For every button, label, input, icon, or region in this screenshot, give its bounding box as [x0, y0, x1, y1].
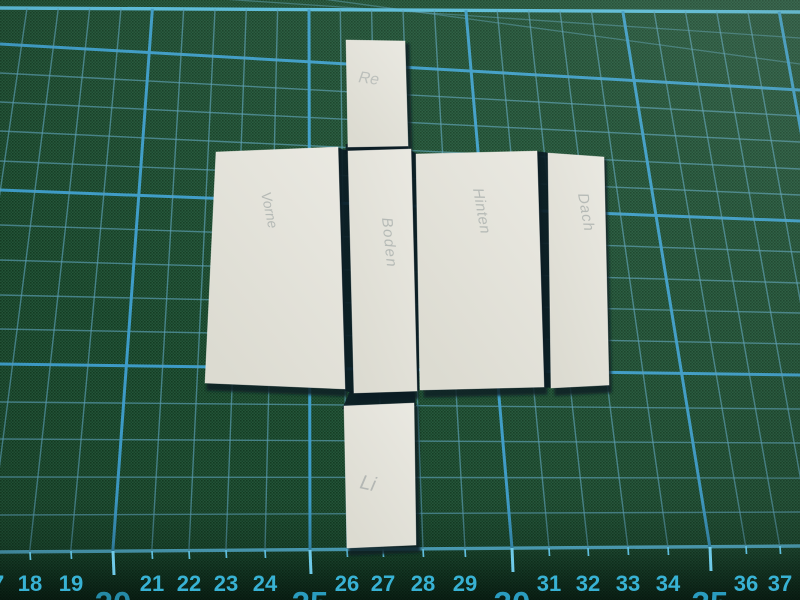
svg-text:29: 29 [453, 571, 477, 596]
svg-text:Re: Re [357, 69, 380, 89]
svg-text:32: 32 [576, 571, 600, 596]
svg-text:36: 36 [734, 571, 758, 596]
svg-text:18: 18 [18, 571, 42, 596]
svg-text:27: 27 [371, 571, 395, 596]
svg-text:33: 33 [616, 571, 640, 596]
svg-text:22: 22 [177, 571, 201, 596]
svg-text:37: 37 [768, 571, 792, 596]
svg-text:34: 34 [656, 571, 681, 596]
svg-text:31: 31 [537, 571, 561, 596]
svg-text:21: 21 [140, 571, 164, 596]
svg-text:19: 19 [59, 571, 83, 596]
svg-text:24: 24 [253, 571, 278, 596]
svg-text:30: 30 [494, 585, 531, 600]
svg-text:23: 23 [214, 571, 238, 596]
svg-text:28: 28 [411, 571, 435, 596]
svg-text:35: 35 [692, 585, 729, 600]
svg-text:17: 17 [0, 571, 4, 596]
svg-text:25: 25 [292, 585, 329, 600]
svg-text:20: 20 [95, 585, 132, 600]
svg-text:26: 26 [335, 571, 359, 596]
